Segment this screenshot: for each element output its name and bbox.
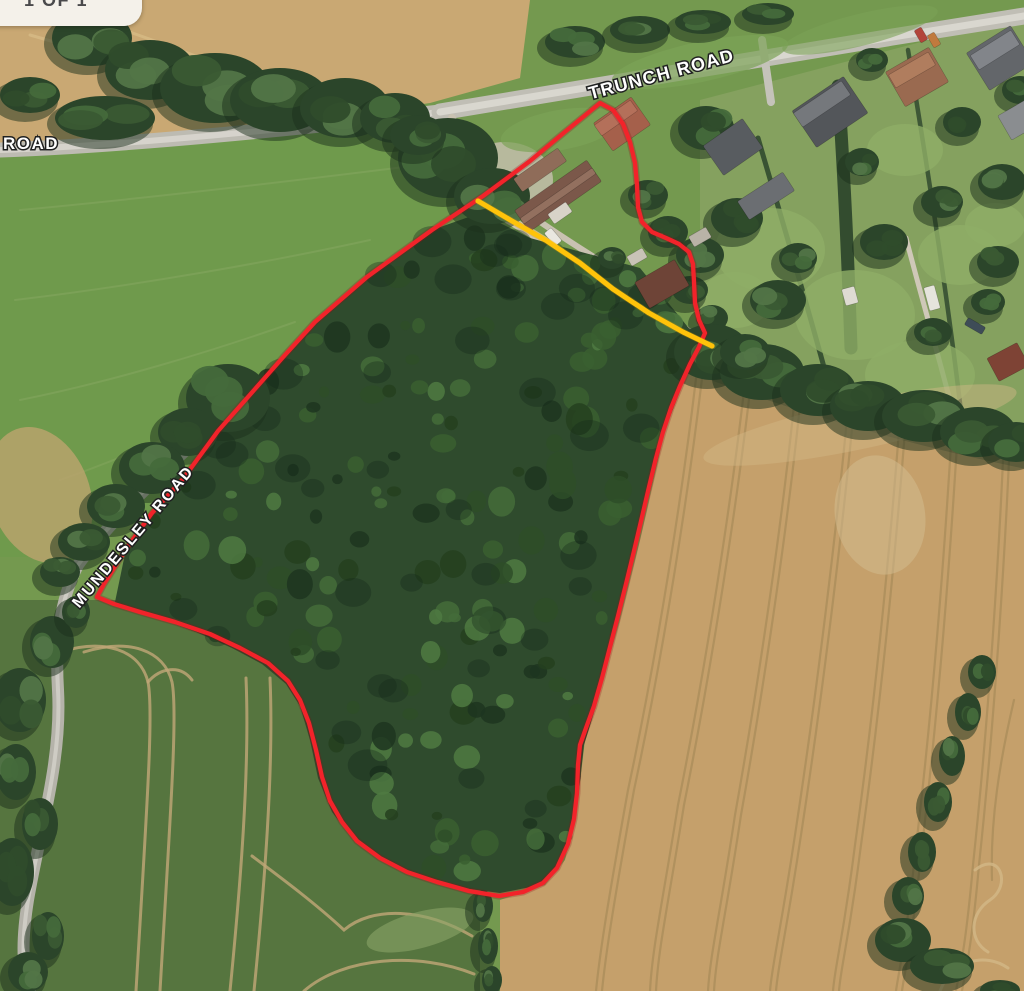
building: [626, 248, 647, 267]
satellite-map-canvas: TRUNCH ROADROADMUNDESLEY ROAD: [0, 0, 1024, 991]
map-view[interactable]: TRUNCH ROADROADMUNDESLEY ROAD 1 OF 1: [0, 0, 1024, 991]
unnamed-road-label: ROAD: [3, 134, 59, 153]
photo-counter-text: 1 OF 1: [24, 0, 88, 11]
photo-counter-badge: 1 OF 1: [0, 0, 142, 26]
